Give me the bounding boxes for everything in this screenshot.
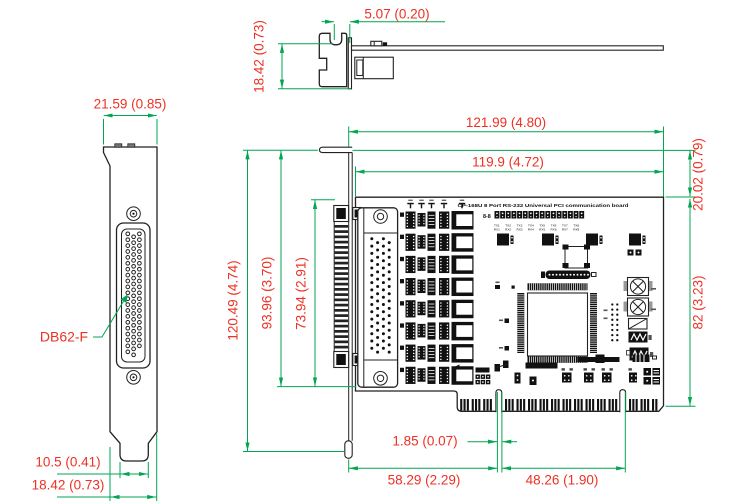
dim-foot-width: 10.5 (0.41) bbox=[35, 455, 100, 470]
bracket-plate-bottom-tab bbox=[345, 441, 352, 459]
pci-key-slot-1 bbox=[496, 390, 502, 413]
dim-bracket-bottom-width: 18.42 (0.73) bbox=[32, 478, 105, 493]
top-view-component bbox=[371, 41, 382, 46]
dim-key-notch-width: 1.85 (0.07) bbox=[392, 434, 457, 449]
board-title: CP-168U 8 Port RS-232 Universal PCI comm… bbox=[458, 203, 629, 209]
pcb-edge-top-view bbox=[352, 46, 664, 50]
dim-top-offset-right: 20.02 (0.79) bbox=[691, 138, 706, 211]
dim-edge-right-segment: 48.26 (1.90) bbox=[526, 473, 599, 488]
dim-bracket-top-width: 21.59 (0.85) bbox=[94, 97, 167, 112]
dim-total-width: 121.99 (4.80) bbox=[466, 115, 546, 130]
dim-right-height: 82 (3.23) bbox=[691, 275, 706, 329]
db62-post-top-left-bolt bbox=[336, 208, 346, 219]
top-view bbox=[319, 33, 663, 89]
screw-hole-bottom-dot bbox=[132, 376, 134, 378]
db62-side-teeth bbox=[335, 225, 349, 348]
cap2-tab-left bbox=[624, 302, 628, 312]
bracket-profile-outline bbox=[319, 33, 346, 86]
connector-label: DB62-F bbox=[40, 329, 88, 345]
cap1-tab-left bbox=[624, 281, 628, 291]
header-strip bbox=[541, 271, 596, 280]
svg-text:RX4: RX4 bbox=[528, 228, 534, 232]
technical-drawing: CP-168U 8 Port RS-232 Universal PCI comm… bbox=[0, 0, 730, 504]
pci-key-slot-2 bbox=[620, 390, 626, 413]
dim-top-height: 18.42 (0.73) bbox=[252, 20, 267, 93]
screw-hole-top-dot bbox=[132, 213, 134, 215]
db62-pin-grid bbox=[126, 232, 141, 357]
svg-text:RX7: RX7 bbox=[562, 228, 568, 232]
db62-post-bottom-left-bolt bbox=[336, 354, 346, 365]
svg-text:RX6: RX6 bbox=[551, 228, 557, 232]
dim-pcb-width: 119.9 (4.72) bbox=[472, 155, 544, 170]
dim-left-height: 93.96 (3.70) bbox=[260, 257, 275, 330]
dim-total-height: 120.49 (4.74) bbox=[226, 260, 241, 340]
svg-text:RX8: RX8 bbox=[573, 228, 579, 232]
bracket-front-view bbox=[104, 144, 158, 461]
bracket-tab-left bbox=[115, 144, 122, 147]
svg-text:RX5: RX5 bbox=[539, 228, 545, 232]
jumper-block-label: 8-8 bbox=[483, 214, 491, 220]
dim-connector-height: 73.94 (2.91) bbox=[294, 257, 309, 330]
svg-text:RX3: RX3 bbox=[516, 228, 522, 232]
svg-text:RX2: RX2 bbox=[505, 228, 511, 232]
technical-drawing-page: CP-168U 8 Port RS-232 Universal PCI comm… bbox=[0, 0, 730, 504]
board-front-view: CP-168U 8 Port RS-232 Universal PCI comm… bbox=[320, 147, 664, 458]
bracket-plate-top-tab bbox=[320, 147, 353, 152]
dim-top-offset: 5.07 (0.20) bbox=[364, 7, 429, 22]
dim-edge-left-segment: 58.29 (2.29) bbox=[388, 473, 461, 488]
svg-text:RX1: RX1 bbox=[494, 228, 500, 232]
bracket-tab-right bbox=[128, 144, 135, 147]
top-view-component-2 bbox=[383, 42, 387, 46]
